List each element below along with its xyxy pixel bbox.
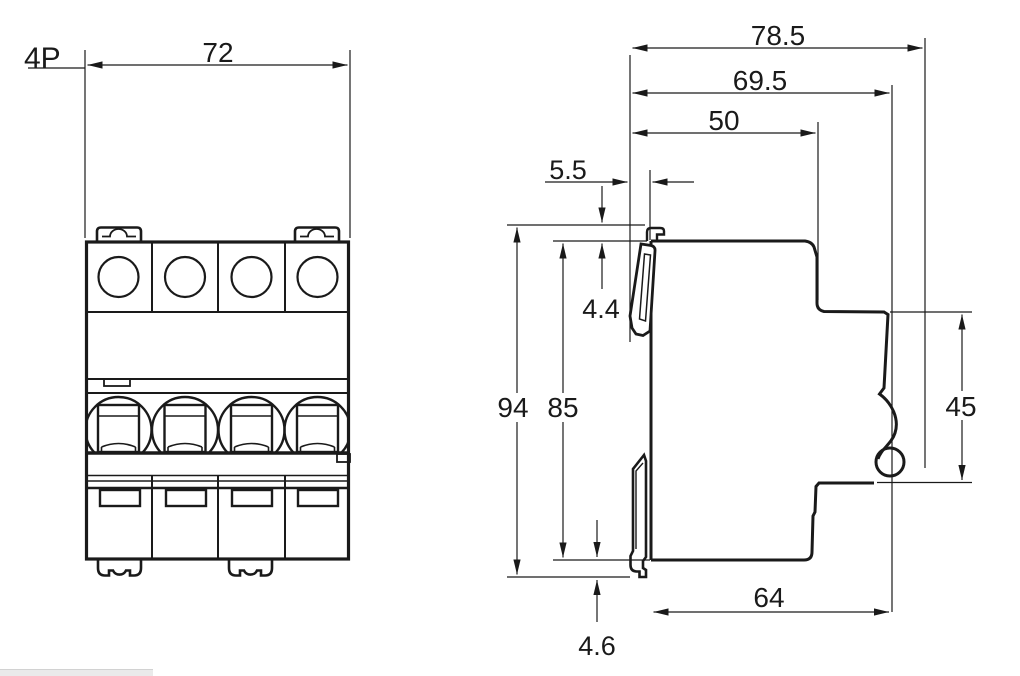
- dim-label-upper-depth: 50: [708, 105, 739, 136]
- front-view: [86, 228, 351, 576]
- label-window: [104, 379, 130, 386]
- side-terminal-loop: [876, 448, 904, 476]
- dim-label-overall-depth: 78.5: [751, 20, 806, 51]
- side-view: [630, 228, 904, 577]
- dim-label-lower-depth: 64: [753, 582, 784, 613]
- front-top-tab-left: [97, 228, 141, 242]
- dimension-lines: [28, 38, 972, 622]
- terminal-hole-1: [99, 257, 139, 297]
- terminal-hole-3: [232, 257, 272, 297]
- breaker-dimension-drawing: 4P 72 78.5 69.5 50 5.5 4.4 94 85 45 64 4…: [0, 0, 1020, 676]
- pole-dividers-top: [152, 242, 285, 312]
- bottom-left-gray-bar: [0, 669, 153, 676]
- dim-label-toggle-protrusion: 5.5: [549, 155, 587, 185]
- dimension-drawing-page: 4P 72 78.5 69.5 50 5.5 4.4 94 85 45 64 4…: [0, 0, 1020, 676]
- side-profile-upper: [651, 241, 896, 459]
- toggle-handle-2: [165, 405, 206, 452]
- toggle-handle-3: [231, 405, 272, 452]
- dim-label-overall-height: 94: [497, 392, 528, 423]
- dim-label-front-width: 72: [202, 37, 233, 68]
- dim-label-body-height: 85: [547, 392, 578, 423]
- dim-label-bottom-offset: 4.6: [578, 631, 616, 661]
- dim-label-top-offset: 4.4: [582, 294, 620, 324]
- terminal-hole-4: [298, 257, 338, 297]
- front-bottom-tab-left: [98, 560, 141, 576]
- dim-label-recess-height: 45: [945, 391, 976, 422]
- terminal-hole-2: [165, 257, 205, 297]
- dimension-labels: 4P 72 78.5 69.5 50 5.5 4.4 94 85 45 64 4…: [24, 20, 977, 661]
- side-profile-lower: [651, 483, 874, 560]
- toggle-handle-1: [98, 405, 139, 452]
- front-top-tab-right: [295, 228, 339, 242]
- side-din-clip: [631, 455, 647, 577]
- side-toggle-lever: [630, 244, 655, 336]
- front-bottom-tab-right: [229, 560, 272, 576]
- dim-label-depth-excl-toggle: 69.5: [733, 65, 788, 96]
- toggle-handle-4: [297, 405, 338, 452]
- pole-count-label: 4P: [24, 42, 61, 75]
